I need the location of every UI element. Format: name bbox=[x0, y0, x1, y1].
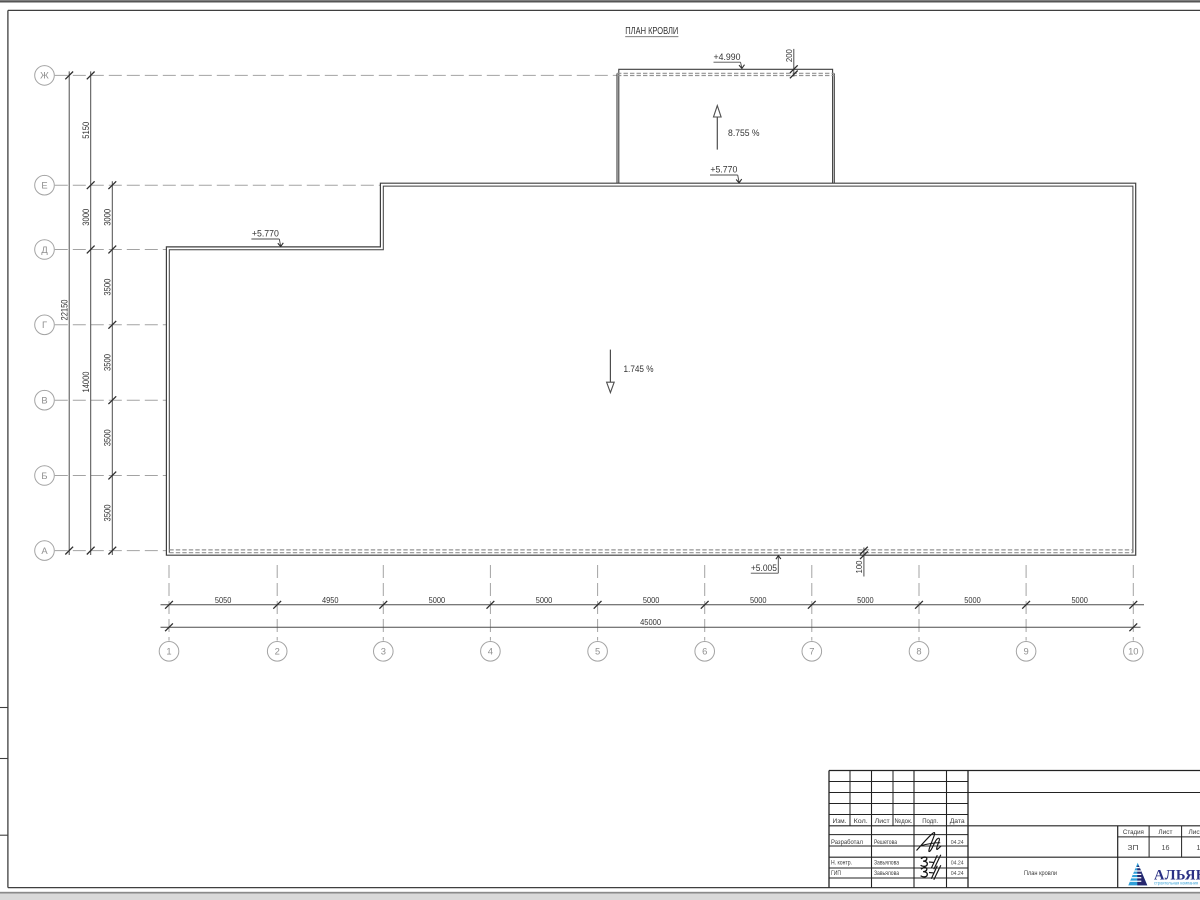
svg-text:+5.770: +5.770 bbox=[252, 229, 279, 239]
svg-text:6: 6 bbox=[702, 646, 707, 657]
svg-text:Г: Г bbox=[42, 319, 47, 330]
svg-text:Б: Б bbox=[41, 470, 47, 481]
svg-text:Решетова: Решетова bbox=[874, 840, 898, 846]
svg-text:В: В bbox=[41, 395, 47, 406]
svg-text:5000: 5000 bbox=[964, 595, 981, 605]
svg-text:14000: 14000 bbox=[81, 371, 91, 392]
svg-text:3500: 3500 bbox=[103, 429, 113, 446]
svg-text:04.24: 04.24 bbox=[951, 871, 964, 877]
svg-text:ПЛАН КРОВЛИ: ПЛАН КРОВЛИ bbox=[625, 26, 678, 37]
svg-text:1: 1 bbox=[166, 646, 171, 657]
svg-text:Листов: Листов bbox=[1189, 829, 1200, 836]
svg-text:Завьялова: Завьялова bbox=[874, 861, 900, 867]
svg-text:+5.005: +5.005 bbox=[751, 563, 777, 573]
svg-text:45000: 45000 bbox=[640, 617, 661, 627]
svg-text:04.24: 04.24 bbox=[951, 840, 964, 846]
svg-text:3000: 3000 bbox=[103, 209, 113, 226]
svg-text:5000: 5000 bbox=[643, 595, 660, 605]
svg-text:16: 16 bbox=[1162, 843, 1170, 852]
svg-text:200: 200 bbox=[785, 49, 794, 62]
svg-text:10: 10 bbox=[1128, 646, 1138, 657]
svg-text:Лист: Лист bbox=[875, 818, 890, 825]
svg-text:04.24: 04.24 bbox=[951, 861, 964, 867]
svg-text:5: 5 bbox=[595, 646, 600, 657]
svg-text:3500: 3500 bbox=[103, 354, 113, 371]
svg-text:Изм.: Изм. bbox=[833, 818, 847, 825]
svg-text:Е: Е bbox=[41, 180, 47, 191]
svg-text:Н. контр.: Н. контр. bbox=[831, 861, 852, 867]
svg-text:4: 4 bbox=[488, 646, 493, 657]
svg-text:Кол.: Кол. bbox=[854, 818, 868, 825]
svg-text:№док.: №док. bbox=[895, 818, 913, 825]
svg-text:Завьялова: Завьялова bbox=[874, 871, 900, 877]
svg-text:ЗП: ЗП bbox=[1128, 843, 1139, 852]
svg-text:Д: Д bbox=[41, 244, 48, 255]
svg-text:А: А bbox=[41, 545, 48, 556]
svg-text:3500: 3500 bbox=[103, 279, 113, 296]
svg-text:100: 100 bbox=[855, 560, 864, 573]
svg-text:8.755 %: 8.755 % bbox=[728, 127, 760, 138]
svg-text:1: 1 bbox=[1196, 843, 1200, 852]
svg-text:8: 8 bbox=[916, 646, 921, 657]
svg-text:1.745 %: 1.745 % bbox=[624, 363, 654, 374]
svg-text:22150: 22150 bbox=[60, 299, 70, 320]
svg-text:+4.990: +4.990 bbox=[714, 52, 741, 62]
svg-text:3000: 3000 bbox=[81, 209, 91, 226]
svg-text:Дата: Дата bbox=[950, 818, 965, 825]
svg-text:3: 3 bbox=[381, 646, 386, 657]
svg-text:7: 7 bbox=[809, 646, 814, 657]
svg-text:5000: 5000 bbox=[429, 595, 446, 605]
svg-text:Стадия: Стадия bbox=[1123, 829, 1144, 836]
svg-text:5000: 5000 bbox=[750, 595, 767, 605]
svg-text:5000: 5000 bbox=[536, 595, 553, 605]
svg-text:5150: 5150 bbox=[81, 122, 91, 139]
svg-text:2: 2 bbox=[275, 646, 280, 657]
svg-text:План кровли: План кровли bbox=[1024, 870, 1057, 877]
svg-text:Подп.: Подп. bbox=[922, 818, 938, 825]
svg-text:Разработал: Разработал bbox=[831, 840, 863, 846]
svg-text:9: 9 bbox=[1023, 646, 1028, 657]
svg-text:5000: 5000 bbox=[857, 595, 874, 605]
svg-text:ГИП: ГИП bbox=[831, 871, 841, 877]
svg-text:Ж: Ж bbox=[40, 70, 49, 81]
svg-text:3500: 3500 bbox=[103, 504, 113, 521]
svg-text:5050: 5050 bbox=[215, 595, 232, 605]
svg-text:Лист: Лист bbox=[1158, 829, 1172, 836]
svg-text:5000: 5000 bbox=[1071, 595, 1088, 605]
svg-text:строительная компания: строительная компания bbox=[1154, 880, 1198, 885]
svg-text:+5.770: +5.770 bbox=[710, 165, 737, 175]
svg-text:4950: 4950 bbox=[322, 595, 339, 605]
